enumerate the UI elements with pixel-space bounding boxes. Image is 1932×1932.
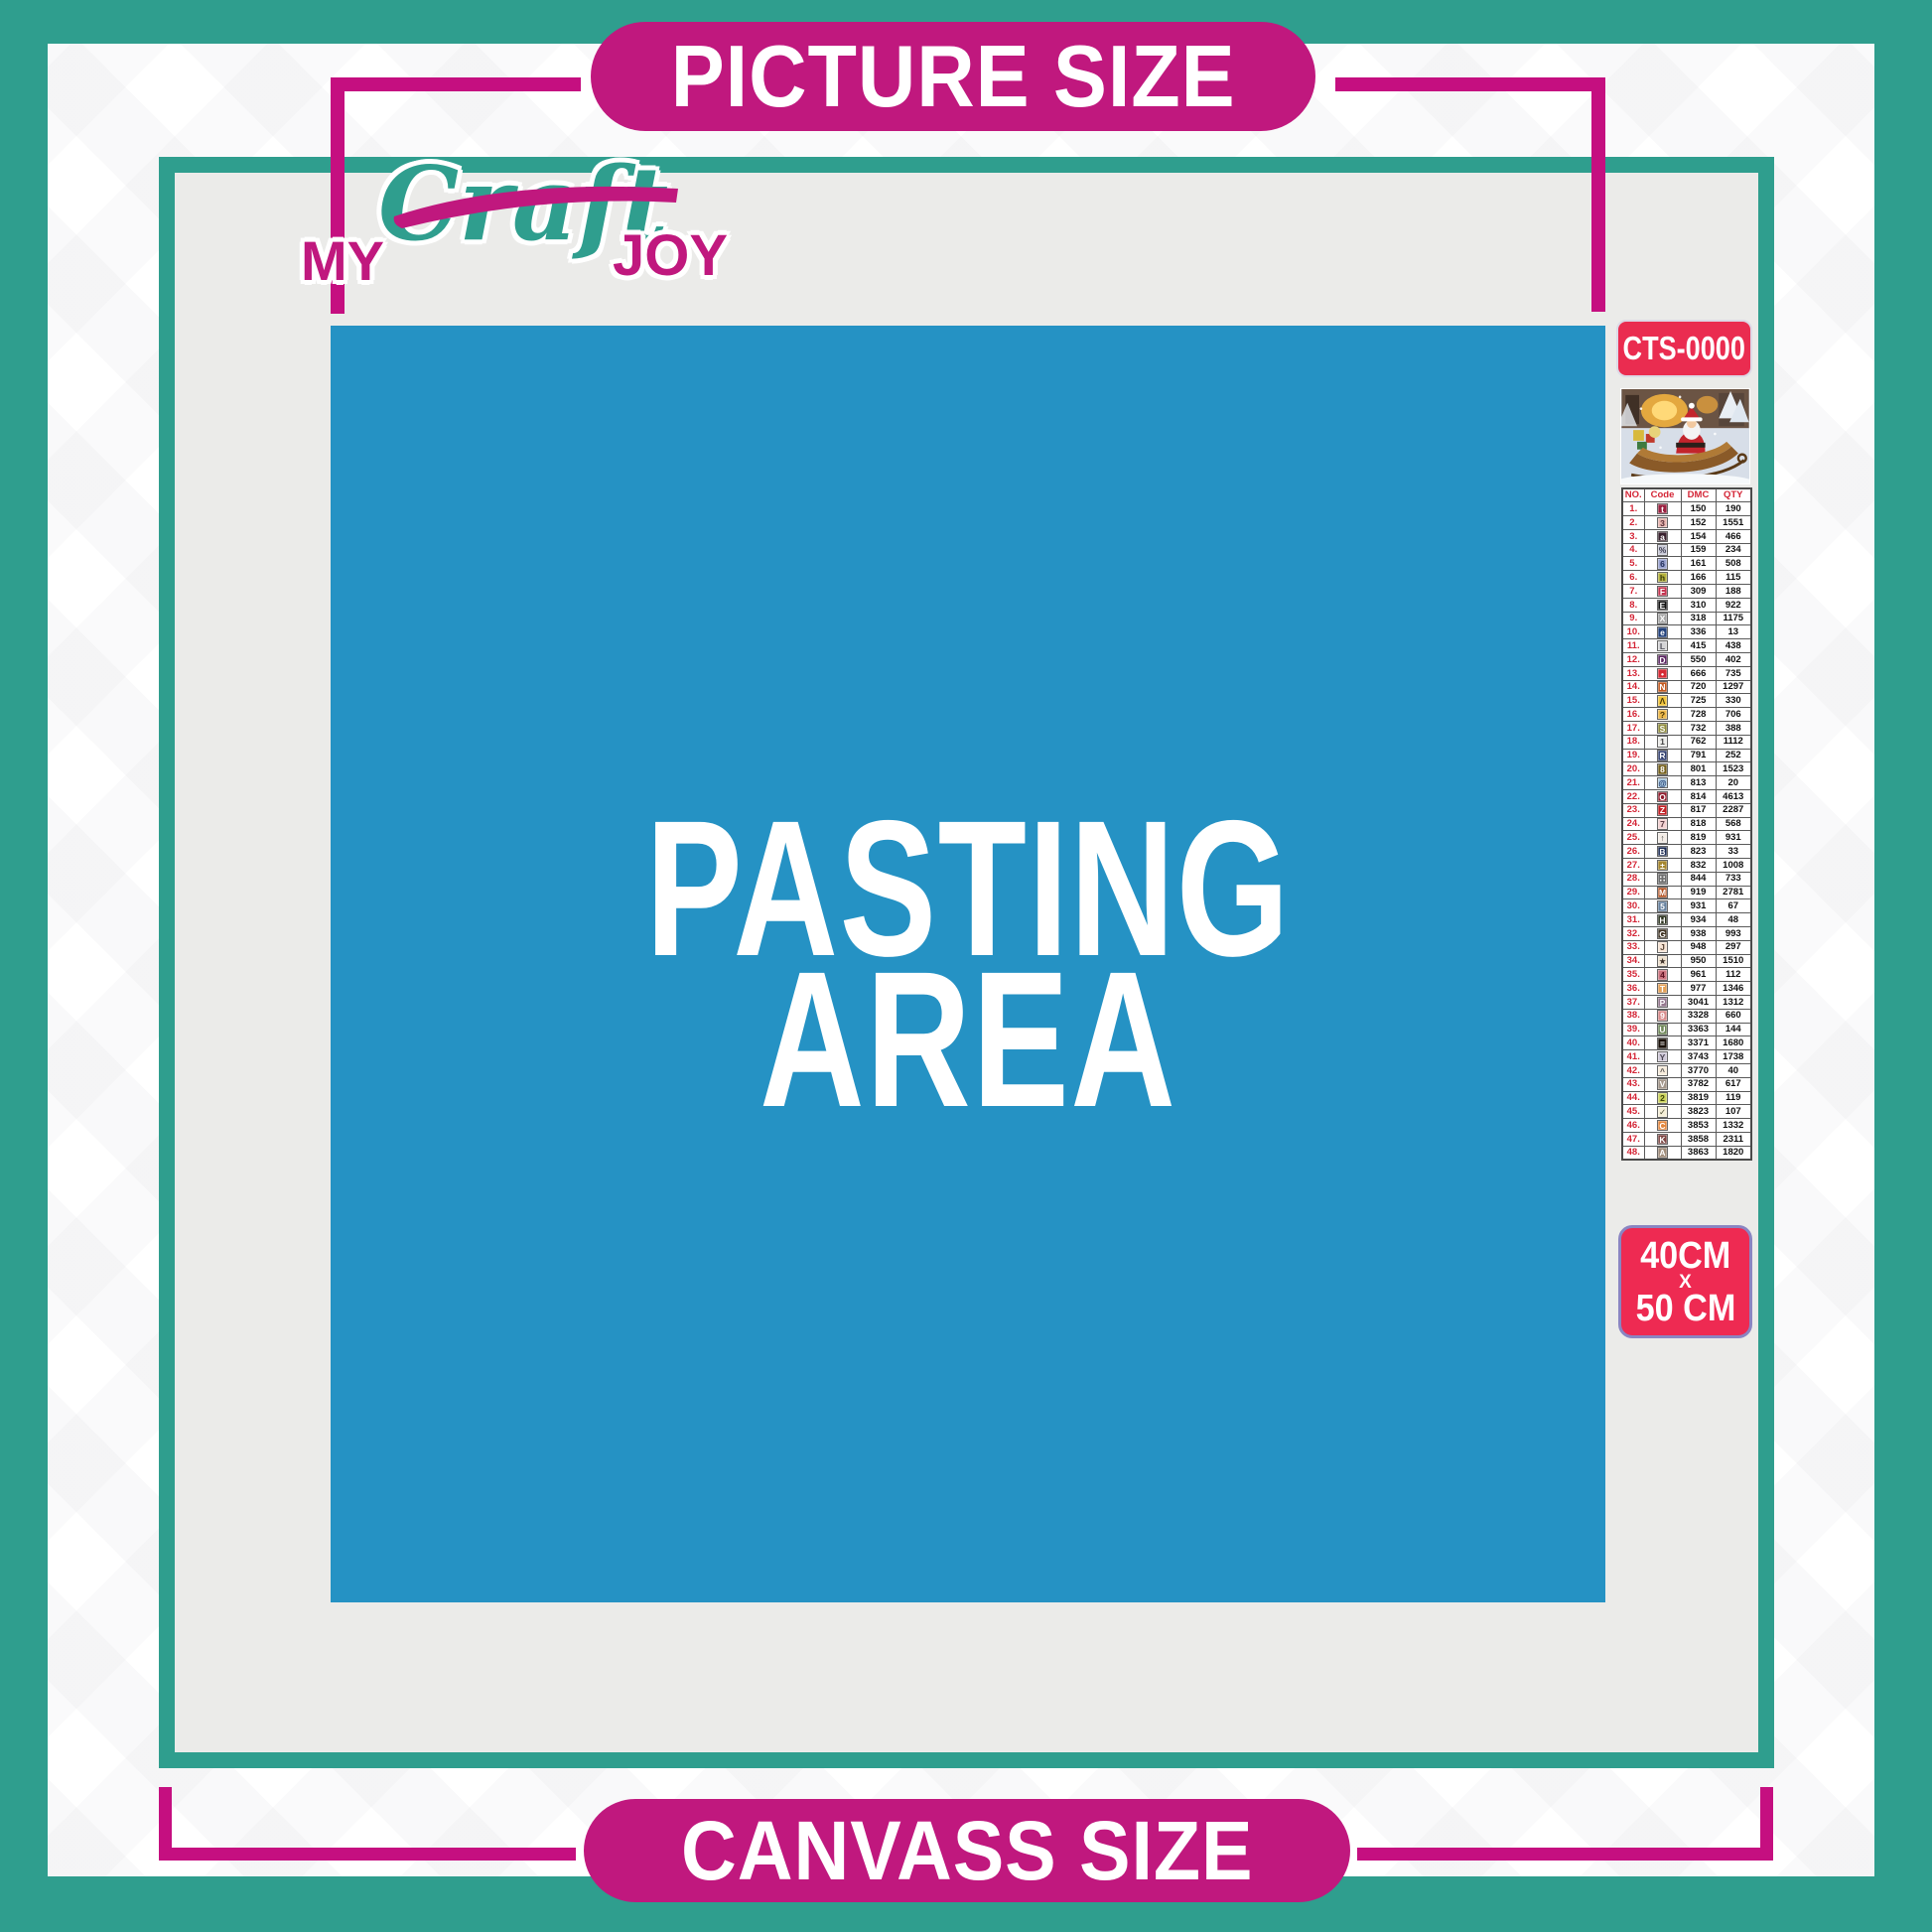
product-code-badge: CTS-0000 bbox=[1616, 320, 1752, 377]
table-row: 35. 4 961 112 bbox=[1622, 968, 1751, 982]
table-row: 41. Y 3743 1738 bbox=[1622, 1050, 1751, 1064]
row-dmc-value: 666 bbox=[1681, 666, 1716, 680]
row-dmc-value: 161 bbox=[1681, 557, 1716, 571]
row-qty-value: 1332 bbox=[1716, 1119, 1751, 1133]
color-chip: e bbox=[1657, 626, 1669, 638]
row-code-cell: T bbox=[1644, 982, 1681, 996]
row-dmc-value: 3782 bbox=[1681, 1077, 1716, 1091]
logo-word-my: MY bbox=[301, 228, 384, 293]
row-qty-value: 1680 bbox=[1716, 1036, 1751, 1050]
row-qty-value: 4613 bbox=[1716, 790, 1751, 804]
row-dmc-value: 3823 bbox=[1681, 1105, 1716, 1119]
table-row: 30. 5 931 67 bbox=[1622, 899, 1751, 913]
row-qty-value: 1551 bbox=[1716, 516, 1751, 530]
color-chip: P bbox=[1657, 997, 1669, 1009]
row-qty-value: 617 bbox=[1716, 1077, 1751, 1091]
color-chip: 9 bbox=[1657, 1010, 1669, 1022]
row-number: 9. bbox=[1622, 612, 1644, 625]
row-number: 23. bbox=[1622, 803, 1644, 817]
row-dmc-value: 310 bbox=[1681, 598, 1716, 612]
table-row: 13. • 666 735 bbox=[1622, 666, 1751, 680]
row-number: 29. bbox=[1622, 886, 1644, 899]
row-number: 34. bbox=[1622, 954, 1644, 968]
bracket-line-top-right-vertical bbox=[1591, 77, 1605, 312]
row-dmc-value: 961 bbox=[1681, 968, 1716, 982]
row-code-cell: 5 bbox=[1644, 899, 1681, 913]
row-qty-value: 40 bbox=[1716, 1063, 1751, 1077]
row-dmc-value: 813 bbox=[1681, 776, 1716, 790]
row-qty-value: 733 bbox=[1716, 872, 1751, 886]
row-dmc-value: 817 bbox=[1681, 803, 1716, 817]
row-dmc-value: 3328 bbox=[1681, 1009, 1716, 1023]
table-header-row: NO. Code DMC QTY bbox=[1622, 488, 1751, 502]
color-chip: V bbox=[1657, 1078, 1669, 1090]
row-number: 2. bbox=[1622, 516, 1644, 530]
row-dmc-value: 934 bbox=[1681, 913, 1716, 927]
table-row: 33. J 948 297 bbox=[1622, 940, 1751, 954]
row-number: 22. bbox=[1622, 790, 1644, 804]
row-code-cell: U bbox=[1644, 1023, 1681, 1036]
row-dmc-value: 3371 bbox=[1681, 1036, 1716, 1050]
table-row: 27. ± 832 1008 bbox=[1622, 859, 1751, 873]
row-code-cell: @ bbox=[1644, 776, 1681, 790]
row-number: 25. bbox=[1622, 831, 1644, 845]
row-number: 21. bbox=[1622, 776, 1644, 790]
color-chip: J bbox=[1657, 941, 1669, 953]
color-chip: A bbox=[1657, 1147, 1669, 1159]
row-dmc-value: 844 bbox=[1681, 872, 1716, 886]
color-chip: 5 bbox=[1657, 900, 1669, 912]
color-chip: O bbox=[1657, 791, 1669, 803]
table-row: 5. 6 161 508 bbox=[1622, 557, 1751, 571]
row-code-cell: t bbox=[1644, 502, 1681, 516]
row-qty-value: 660 bbox=[1716, 1009, 1751, 1023]
row-dmc-value: 819 bbox=[1681, 831, 1716, 845]
row-code-cell: ★ bbox=[1644, 954, 1681, 968]
row-number: 37. bbox=[1622, 995, 1644, 1009]
color-chip: 2 bbox=[1657, 1092, 1669, 1104]
color-chip: S bbox=[1657, 723, 1669, 735]
row-dmc-value: 3770 bbox=[1681, 1063, 1716, 1077]
color-chip: 3 bbox=[1657, 517, 1669, 529]
row-code-cell: • bbox=[1644, 666, 1681, 680]
table-row: 48. A 3863 1820 bbox=[1622, 1146, 1751, 1160]
row-code-cell: J bbox=[1644, 940, 1681, 954]
row-code-cell: F bbox=[1644, 585, 1681, 599]
row-dmc-value: 154 bbox=[1681, 529, 1716, 543]
row-code-cell: P bbox=[1644, 995, 1681, 1009]
color-chip: ★ bbox=[1657, 955, 1669, 967]
row-code-cell: B bbox=[1644, 845, 1681, 859]
row-number: 40. bbox=[1622, 1036, 1644, 1050]
canvass-size-banner: CANVASS SIZE bbox=[584, 1799, 1350, 1902]
row-qty-value: 1510 bbox=[1716, 954, 1751, 968]
row-qty-value: 466 bbox=[1716, 529, 1751, 543]
row-dmc-value: 318 bbox=[1681, 612, 1716, 625]
row-number: 20. bbox=[1622, 762, 1644, 776]
row-code-cell: 4 bbox=[1644, 968, 1681, 982]
row-code-cell: A bbox=[1644, 1146, 1681, 1160]
row-code-cell: h bbox=[1644, 571, 1681, 585]
row-code-cell: D bbox=[1644, 653, 1681, 667]
table-row: 36. T 977 1346 bbox=[1622, 982, 1751, 996]
row-code-cell: V bbox=[1644, 1077, 1681, 1091]
row-number: 47. bbox=[1622, 1132, 1644, 1146]
table-row: 10. e 336 13 bbox=[1622, 625, 1751, 639]
color-chip: a bbox=[1657, 531, 1669, 543]
size-height-label: 50 CM bbox=[1635, 1291, 1735, 1326]
row-dmc-value: 550 bbox=[1681, 653, 1716, 667]
color-chip: F bbox=[1657, 586, 1669, 598]
table-row: 43. V 3782 617 bbox=[1622, 1077, 1751, 1091]
row-dmc-value: 166 bbox=[1681, 571, 1716, 585]
row-qty-value: 48 bbox=[1716, 913, 1751, 927]
header-qty: QTY bbox=[1716, 488, 1751, 502]
row-number: 3. bbox=[1622, 529, 1644, 543]
table-row: 46. C 3853 1332 bbox=[1622, 1119, 1751, 1133]
row-code-cell: O bbox=[1644, 790, 1681, 804]
color-chip: T bbox=[1657, 983, 1669, 995]
canvass-size-label: CANVASS SIZE bbox=[681, 1803, 1253, 1899]
table-row: 47. K 3858 2311 bbox=[1622, 1132, 1751, 1146]
row-qty-value: 234 bbox=[1716, 543, 1751, 557]
table-row: 42. ^ 3770 40 bbox=[1622, 1063, 1751, 1077]
header-no: NO. bbox=[1622, 488, 1644, 502]
row-dmc-value: 3853 bbox=[1681, 1119, 1716, 1133]
row-number: 12. bbox=[1622, 653, 1644, 667]
row-code-cell: Z bbox=[1644, 803, 1681, 817]
dmc-color-table: NO. Code DMC QTY 1. t 150 190 2. 3 152 1… bbox=[1621, 487, 1752, 1161]
header-code: Code bbox=[1644, 488, 1681, 502]
row-code-cell: ↑ bbox=[1644, 831, 1681, 845]
row-qty-value: 119 bbox=[1716, 1091, 1751, 1105]
table-row: 26. B 823 33 bbox=[1622, 845, 1751, 859]
row-number: 14. bbox=[1622, 680, 1644, 694]
row-code-cell: Λ bbox=[1644, 694, 1681, 708]
row-number: 38. bbox=[1622, 1009, 1644, 1023]
row-number: 44. bbox=[1622, 1091, 1644, 1105]
row-qty-value: 388 bbox=[1716, 722, 1751, 736]
row-qty-value: 931 bbox=[1716, 831, 1751, 845]
row-code-cell: ^ bbox=[1644, 1063, 1681, 1077]
row-code-cell: 6 bbox=[1644, 557, 1681, 571]
table-row: 7. F 309 188 bbox=[1622, 585, 1751, 599]
row-code-cell: E bbox=[1644, 598, 1681, 612]
header-dmc: DMC bbox=[1681, 488, 1716, 502]
row-dmc-value: 732 bbox=[1681, 722, 1716, 736]
row-qty-value: 297 bbox=[1716, 940, 1751, 954]
row-code-cell: 1 bbox=[1644, 735, 1681, 749]
row-number: 31. bbox=[1622, 913, 1644, 927]
color-table-body: 1. t 150 190 2. 3 152 1551 3. a 154 466 … bbox=[1622, 502, 1751, 1160]
table-row: 44. 2 3819 119 bbox=[1622, 1091, 1751, 1105]
row-qty-value: 706 bbox=[1716, 708, 1751, 722]
row-qty-value: 20 bbox=[1716, 776, 1751, 790]
row-qty-value: 922 bbox=[1716, 598, 1751, 612]
color-chip: 7 bbox=[1657, 818, 1669, 830]
table-row: 29. M 919 2781 bbox=[1622, 886, 1751, 899]
row-dmc-value: 791 bbox=[1681, 749, 1716, 762]
row-code-cell: K bbox=[1644, 1132, 1681, 1146]
row-number: 42. bbox=[1622, 1063, 1644, 1077]
row-dmc-value: 3041 bbox=[1681, 995, 1716, 1009]
color-chip: E bbox=[1657, 600, 1669, 612]
row-qty-value: 735 bbox=[1716, 666, 1751, 680]
row-dmc-value: 725 bbox=[1681, 694, 1716, 708]
color-chip: N bbox=[1657, 681, 1669, 693]
color-chip: 8 bbox=[1657, 763, 1669, 775]
bracket-line-top-right bbox=[1335, 77, 1605, 91]
row-number: 17. bbox=[1622, 722, 1644, 736]
row-qty-value: 1008 bbox=[1716, 859, 1751, 873]
row-number: 1. bbox=[1622, 502, 1644, 516]
row-dmc-value: 3858 bbox=[1681, 1132, 1716, 1146]
table-row: 21. @ 813 20 bbox=[1622, 776, 1751, 790]
row-qty-value: 330 bbox=[1716, 694, 1751, 708]
row-number: 18. bbox=[1622, 735, 1644, 749]
row-code-cell: ∷ bbox=[1644, 872, 1681, 886]
row-code-cell: H bbox=[1644, 913, 1681, 927]
row-code-cell: ± bbox=[1644, 859, 1681, 873]
row-qty-value: 144 bbox=[1716, 1023, 1751, 1036]
row-qty-value: 568 bbox=[1716, 817, 1751, 831]
table-row: 40. = 3371 1680 bbox=[1622, 1036, 1751, 1050]
row-code-cell: ? bbox=[1644, 708, 1681, 722]
table-row: 18. 1 762 1112 bbox=[1622, 735, 1751, 749]
color-chip: G bbox=[1657, 928, 1669, 940]
row-qty-value: 2781 bbox=[1716, 886, 1751, 899]
row-code-cell: 3 bbox=[1644, 516, 1681, 530]
row-code-cell: Y bbox=[1644, 1050, 1681, 1064]
row-qty-value: 1175 bbox=[1716, 612, 1751, 625]
row-number: 35. bbox=[1622, 968, 1644, 982]
table-row: 16. ? 728 706 bbox=[1622, 708, 1751, 722]
product-thumbnail-image bbox=[1620, 388, 1750, 484]
row-qty-value: 993 bbox=[1716, 927, 1751, 941]
row-dmc-value: 3819 bbox=[1681, 1091, 1716, 1105]
color-chip: Y bbox=[1657, 1051, 1669, 1063]
color-chip: D bbox=[1657, 654, 1669, 666]
row-number: 30. bbox=[1622, 899, 1644, 913]
color-chip: H bbox=[1657, 914, 1669, 926]
row-code-cell: X bbox=[1644, 612, 1681, 625]
color-chip: ↑ bbox=[1657, 832, 1669, 844]
row-number: 8. bbox=[1622, 598, 1644, 612]
canvas-size-badge: 40CM X 50 CM bbox=[1618, 1225, 1752, 1338]
row-dmc-value: 823 bbox=[1681, 845, 1716, 859]
table-row: 19. R 791 252 bbox=[1622, 749, 1751, 762]
row-number: 39. bbox=[1622, 1023, 1644, 1036]
row-dmc-value: 3863 bbox=[1681, 1146, 1716, 1160]
color-chip: • bbox=[1657, 668, 1669, 680]
table-row: 15. Λ 725 330 bbox=[1622, 694, 1751, 708]
table-row: 32. G 938 993 bbox=[1622, 927, 1751, 941]
row-number: 36. bbox=[1622, 982, 1644, 996]
table-row: 22. O 814 4613 bbox=[1622, 790, 1751, 804]
row-code-cell: = bbox=[1644, 1036, 1681, 1050]
color-chip: ∷ bbox=[1657, 873, 1669, 885]
row-code-cell: C bbox=[1644, 1119, 1681, 1133]
row-dmc-value: 977 bbox=[1681, 982, 1716, 996]
row-dmc-value: 919 bbox=[1681, 886, 1716, 899]
row-number: 43. bbox=[1622, 1077, 1644, 1091]
row-number: 33. bbox=[1622, 940, 1644, 954]
table-row: 17. S 732 388 bbox=[1622, 722, 1751, 736]
table-row: 37. P 3041 1312 bbox=[1622, 995, 1751, 1009]
row-dmc-value: 950 bbox=[1681, 954, 1716, 968]
row-qty-value: 1297 bbox=[1716, 680, 1751, 694]
color-chip: M bbox=[1657, 887, 1669, 898]
row-number: 32. bbox=[1622, 927, 1644, 941]
bracket-line-bottom-right bbox=[1357, 1848, 1773, 1861]
row-dmc-value: 720 bbox=[1681, 680, 1716, 694]
row-code-cell: S bbox=[1644, 722, 1681, 736]
row-dmc-value: 3363 bbox=[1681, 1023, 1716, 1036]
row-number: 26. bbox=[1622, 845, 1644, 859]
row-dmc-value: 832 bbox=[1681, 859, 1716, 873]
color-chip: ✓ bbox=[1657, 1106, 1669, 1118]
row-qty-value: 1346 bbox=[1716, 982, 1751, 996]
table-row: 38. 9 3328 660 bbox=[1622, 1009, 1751, 1023]
row-code-cell: e bbox=[1644, 625, 1681, 639]
row-qty-value: 2287 bbox=[1716, 803, 1751, 817]
row-code-cell: G bbox=[1644, 927, 1681, 941]
table-row: 20. 8 801 1523 bbox=[1622, 762, 1751, 776]
color-chip: K bbox=[1657, 1134, 1669, 1146]
row-qty-value: 1820 bbox=[1716, 1146, 1751, 1160]
bracket-line-top-left bbox=[331, 77, 581, 91]
row-dmc-value: 150 bbox=[1681, 502, 1716, 516]
row-dmc-value: 818 bbox=[1681, 817, 1716, 831]
table-row: 2. 3 152 1551 bbox=[1622, 516, 1751, 530]
row-dmc-value: 814 bbox=[1681, 790, 1716, 804]
row-qty-value: 1738 bbox=[1716, 1050, 1751, 1064]
picture-size-banner: PICTURE SIZE bbox=[591, 22, 1315, 131]
color-chip: @ bbox=[1657, 777, 1669, 789]
color-chip: ^ bbox=[1657, 1065, 1669, 1077]
row-dmc-value: 762 bbox=[1681, 735, 1716, 749]
table-row: 6. h 166 115 bbox=[1622, 571, 1751, 585]
row-qty-value: 1112 bbox=[1716, 735, 1751, 749]
row-number: 15. bbox=[1622, 694, 1644, 708]
row-dmc-value: 728 bbox=[1681, 708, 1716, 722]
row-qty-value: 1523 bbox=[1716, 762, 1751, 776]
color-chip: C bbox=[1657, 1120, 1669, 1132]
table-row: 34. ★ 950 1510 bbox=[1622, 954, 1751, 968]
row-code-cell: a bbox=[1644, 529, 1681, 543]
color-chip: ? bbox=[1657, 709, 1669, 721]
row-code-cell: M bbox=[1644, 886, 1681, 899]
bracket-line-bottom-left bbox=[159, 1848, 576, 1861]
product-code-label: CTS-0000 bbox=[1623, 330, 1745, 367]
row-number: 27. bbox=[1622, 859, 1644, 873]
color-chip: h bbox=[1657, 572, 1669, 584]
row-qty-value: 188 bbox=[1716, 585, 1751, 599]
row-qty-value: 438 bbox=[1716, 639, 1751, 653]
row-number: 19. bbox=[1622, 749, 1644, 762]
row-number: 41. bbox=[1622, 1050, 1644, 1064]
table-row: 12. D 550 402 bbox=[1622, 653, 1751, 667]
color-chip: 6 bbox=[1657, 558, 1669, 570]
row-code-cell: ✓ bbox=[1644, 1105, 1681, 1119]
size-width-label: 40CM bbox=[1640, 1238, 1730, 1274]
row-dmc-value: 938 bbox=[1681, 927, 1716, 941]
brand-logo: MY Craft JOY bbox=[293, 169, 720, 308]
picture-size-label: PICTURE SIZE bbox=[671, 26, 1236, 127]
row-code-cell: L bbox=[1644, 639, 1681, 653]
pasting-area: PASTING AREA bbox=[331, 326, 1605, 1602]
color-chip: ± bbox=[1657, 860, 1669, 872]
table-row: 24. 7 818 568 bbox=[1622, 817, 1751, 831]
color-chip: R bbox=[1657, 750, 1669, 761]
logo-word-joy: JOY bbox=[613, 222, 728, 289]
row-dmc-value: 159 bbox=[1681, 543, 1716, 557]
color-chip: 1 bbox=[1657, 736, 1669, 748]
row-qty-value: 33 bbox=[1716, 845, 1751, 859]
row-dmc-value: 3743 bbox=[1681, 1050, 1716, 1064]
row-number: 46. bbox=[1622, 1119, 1644, 1133]
row-dmc-value: 931 bbox=[1681, 899, 1716, 913]
row-number: 48. bbox=[1622, 1146, 1644, 1160]
table-row: 3. a 154 466 bbox=[1622, 529, 1751, 543]
color-chip: X bbox=[1657, 613, 1669, 624]
table-row: 28. ∷ 844 733 bbox=[1622, 872, 1751, 886]
color-chip: U bbox=[1657, 1024, 1669, 1035]
color-chip: B bbox=[1657, 846, 1669, 858]
row-qty-value: 508 bbox=[1716, 557, 1751, 571]
row-number: 13. bbox=[1622, 666, 1644, 680]
row-code-cell: R bbox=[1644, 749, 1681, 762]
row-qty-value: 1312 bbox=[1716, 995, 1751, 1009]
row-dmc-value: 801 bbox=[1681, 762, 1716, 776]
row-number: 24. bbox=[1622, 817, 1644, 831]
row-dmc-value: 415 bbox=[1681, 639, 1716, 653]
color-chip: 4 bbox=[1657, 969, 1669, 981]
row-dmc-value: 309 bbox=[1681, 585, 1716, 599]
row-dmc-value: 336 bbox=[1681, 625, 1716, 639]
color-chip: = bbox=[1657, 1037, 1669, 1049]
color-chip: Λ bbox=[1657, 695, 1669, 707]
row-number: 45. bbox=[1622, 1105, 1644, 1119]
row-dmc-value: 152 bbox=[1681, 516, 1716, 530]
row-number: 11. bbox=[1622, 639, 1644, 653]
color-chip: % bbox=[1657, 544, 1669, 556]
color-chip: L bbox=[1657, 640, 1669, 652]
row-qty-value: 112 bbox=[1716, 968, 1751, 982]
row-number: 4. bbox=[1622, 543, 1644, 557]
row-qty-value: 67 bbox=[1716, 899, 1751, 913]
row-qty-value: 107 bbox=[1716, 1105, 1751, 1119]
row-number: 5. bbox=[1622, 557, 1644, 571]
table-row: 45. ✓ 3823 107 bbox=[1622, 1105, 1751, 1119]
row-code-cell: 7 bbox=[1644, 817, 1681, 831]
row-qty-value: 252 bbox=[1716, 749, 1751, 762]
table-row: 4. % 159 234 bbox=[1622, 543, 1751, 557]
row-qty-value: 115 bbox=[1716, 571, 1751, 585]
row-qty-value: 402 bbox=[1716, 653, 1751, 667]
pasting-area-line2: AREA bbox=[759, 964, 1176, 1115]
table-row: 9. X 318 1175 bbox=[1622, 612, 1751, 625]
row-dmc-value: 948 bbox=[1681, 940, 1716, 954]
table-row: 11. L 415 438 bbox=[1622, 639, 1751, 653]
table-row: 39. U 3363 144 bbox=[1622, 1023, 1751, 1036]
poster-canvas: PICTURE SIZE CANVASS SIZE MY Craft JOY P… bbox=[0, 0, 1932, 1932]
table-row: 25. ↑ 819 931 bbox=[1622, 831, 1751, 845]
row-code-cell: 8 bbox=[1644, 762, 1681, 776]
row-qty-value: 190 bbox=[1716, 502, 1751, 516]
row-number: 28. bbox=[1622, 872, 1644, 886]
row-code-cell: 9 bbox=[1644, 1009, 1681, 1023]
